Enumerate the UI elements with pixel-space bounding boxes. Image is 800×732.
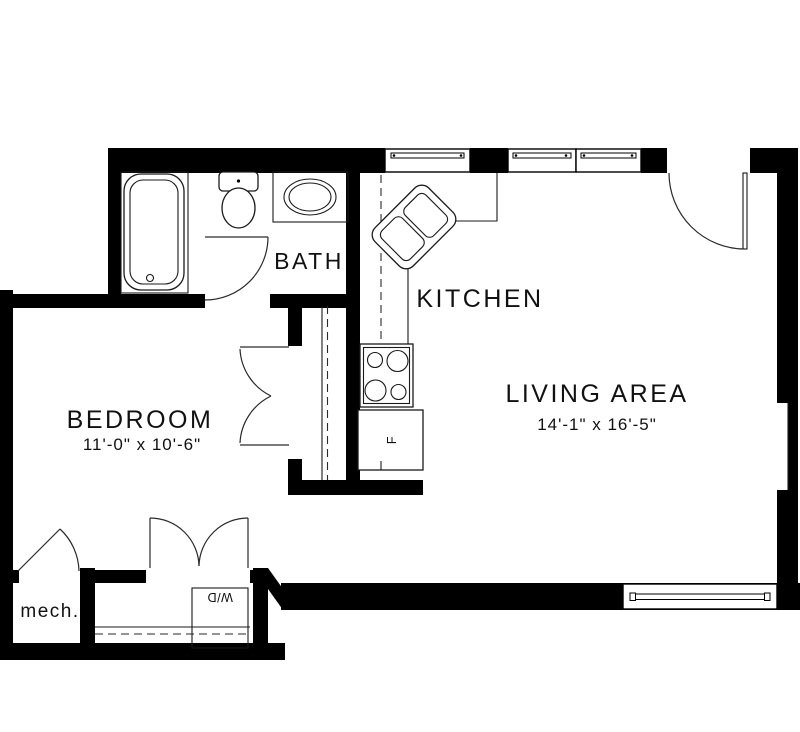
bath-label: BATH: [274, 248, 344, 274]
wall-closet-north: [80, 570, 146, 583]
wall-bedroom-north: [0, 294, 205, 308]
wall-bath-left: [108, 148, 121, 294]
bath-door-swing-arc: [205, 237, 268, 300]
mech-door: [18, 529, 79, 571]
wall-top-1: [108, 148, 385, 173]
wall-mech-door-stub: [13, 570, 19, 583]
wall-wd-closet-jamb: [250, 570, 268, 583]
floor-plan-svg: F W/D BEDROOM 11'-0" x 10'-6" LIVING ARE…: [0, 0, 800, 732]
wall-top-4: [750, 148, 777, 173]
bedroom-label: BEDROOM: [67, 406, 214, 434]
wall-bedroom-east-bottom: [288, 459, 302, 482]
mech-label: mech.: [20, 601, 79, 622]
kitchen-label: KITCHEN: [416, 285, 543, 313]
window-top-1: [385, 149, 470, 172]
stove: [360, 344, 413, 407]
bedroom-closet-doors: [240, 347, 289, 445]
kitchen-corner-sink: [368, 181, 460, 273]
bathtub: [121, 172, 188, 293]
floor-plan-page: F W/D BEDROOM 11'-0" x 10'-6" LIVING ARE…: [0, 0, 800, 732]
wall-top-3: [641, 148, 667, 173]
window-bottom: [623, 584, 777, 609]
entry-door: [669, 173, 747, 249]
toilet: [219, 172, 258, 228]
wall-bedroom-east-top: [288, 303, 302, 346]
window-top-3: [576, 149, 641, 172]
washer-dryer-label: W/D: [207, 590, 233, 604]
vanity-sink: [273, 172, 348, 222]
window-top-2: [508, 149, 576, 172]
wd-closet-doors: [150, 518, 248, 568]
wall-right-notch: [775, 403, 788, 490]
bedroom-closet: [322, 306, 328, 480]
wall-bottom-left: [0, 643, 285, 660]
mech-door-swing-arc: [60, 529, 79, 571]
fridge-label: F: [385, 436, 399, 444]
bedroom-dimensions: 11'-0" x 10'-6": [83, 435, 201, 454]
living-area-label: LIVING AREA: [505, 380, 688, 408]
wd-closet: W/D: [95, 588, 250, 648]
wall-top-2: [470, 148, 508, 173]
living-area-dimensions: 14'-1" x 16'-5": [537, 415, 657, 434]
entry-door-swing-arc: [669, 173, 745, 249]
bath-door: [205, 237, 268, 300]
wall-left: [0, 290, 13, 660]
wall-kitchen-south: [288, 480, 423, 495]
fridge: F: [358, 410, 423, 470]
wall-right: [777, 148, 798, 610]
